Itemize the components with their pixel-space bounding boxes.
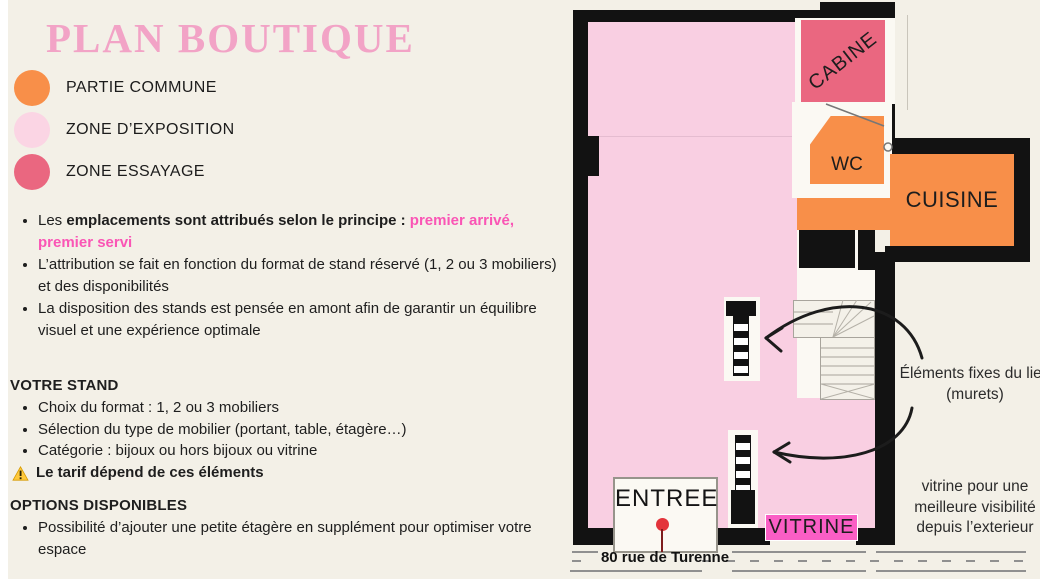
annotation-murets: Éléments fixes du lieu (murets) [893,364,1040,405]
muret-upper [724,297,760,381]
vitrine-band: VITRINE [765,514,858,541]
legend-label: ZONE ESSAYAGE [66,163,205,181]
intro-text-bold: emplacements sont attribués selon le pri… [66,212,409,229]
legend-item-partie-commune: PARTIE COMMUNE [14,70,235,106]
wall-right-lower [875,252,895,545]
warning-text: Le tarif dépend de ces éléments [36,464,264,481]
legend-swatch-pink-icon [14,112,50,148]
corridor-partie-commune [797,198,891,230]
section-votre-stand: VOTRE STAND Choix du format : 1, 2 ou 3 … [10,377,570,481]
wall-pilaster [573,136,599,176]
section-options-disponibles: OPTIONS DISPONIBLES Possibilité d’ajoute… [10,497,570,560]
intro-bullet-list: Les emplacements sont attribués selon le… [22,210,570,342]
list-item: Catégorie : bijoux ou hors bijoux ou vit… [38,440,570,462]
muret-dashed-column [733,316,749,376]
zone-exposition-area [588,20,797,528]
wall-bottom [856,528,895,545]
list-item: Sélection du type de mobilier (portant, … [38,419,570,441]
annotation-vitrine: vitrine pour une meilleure visibilité de… [893,477,1040,539]
left-margin-strip [0,0,8,579]
room-label-wc: WC [831,154,863,176]
muret-lower [728,430,758,528]
legend-item-zone-exposition: ZONE D’EXPOSITION [14,112,235,148]
list-item: L’attribution se fait en fonction du for… [38,254,570,297]
room-label-cuisine: CUISINE [906,187,999,213]
staircase [793,300,875,400]
legend: PARTIE COMMUNE ZONE D’EXPOSITION ZONE ES… [14,70,235,196]
legend-label: ZONE D’EXPOSITION [66,121,235,139]
entrance-recess: ENTREE [613,477,718,553]
wall-cuisine-bottom [885,246,1030,262]
slide-plan-boutique: PLAN BOUTIQUE PARTIE COMMUNE ZONE D’EXPO… [0,0,1040,579]
muret-base [731,490,755,524]
room-label-entree: ENTREE [615,485,716,513]
wall-bottom [718,528,770,545]
wall-cuisine-right [1014,138,1030,262]
muret-cap [726,301,756,316]
floor-plan: CABINE WC CUISINE [570,0,1040,579]
list-item: Possibilité d’ajouter une petite étagère… [38,517,570,560]
wall-middle [799,230,855,268]
plan-seam-line [588,136,797,137]
wall-middle [858,230,875,270]
legend-item-zone-essayage: ZONE ESSAYAGE [14,154,235,190]
legend-swatch-orange-icon [14,70,50,106]
room-cuisine: CUISINE [890,154,1014,246]
muret-dashed-column [735,435,751,491]
list-item: Les emplacements sont attribués selon le… [38,210,570,253]
zone-exposition-area [797,398,875,528]
wall-bottom [573,528,615,545]
section-heading: VOTRE STAND [10,377,570,394]
warning-line: Le tarif dépend de ces éléments [12,464,570,481]
page-title: PLAN BOUTIQUE [46,14,415,62]
legend-label: PARTIE COMMUNE [66,79,217,97]
intro-text: Les [38,212,66,229]
wall-top [573,10,825,22]
warning-triangle-icon [12,466,29,481]
legend-swatch-rose-icon [14,154,50,190]
list-item: La disposition des stands est pensée en … [38,298,570,341]
street-name: 80 rue de Turenne [598,549,732,566]
room-label-cabine: CABINE [804,27,882,95]
list-item: Choix du format : 1, 2 ou 3 mobiliers [38,397,570,419]
plan-edge-line [907,15,908,110]
wall-left [573,10,588,545]
options-list: Possibilité d’ajouter une petite étagère… [10,517,570,560]
wall-cuisine-top [885,138,1030,154]
votre-stand-list: Choix du format : 1, 2 ou 3 mobiliers Sé… [10,397,570,462]
section-heading: OPTIONS DISPONIBLES [10,497,570,514]
room-label-vitrine: VITRINE [769,516,855,539]
room-cabine: CABINE [801,20,885,102]
